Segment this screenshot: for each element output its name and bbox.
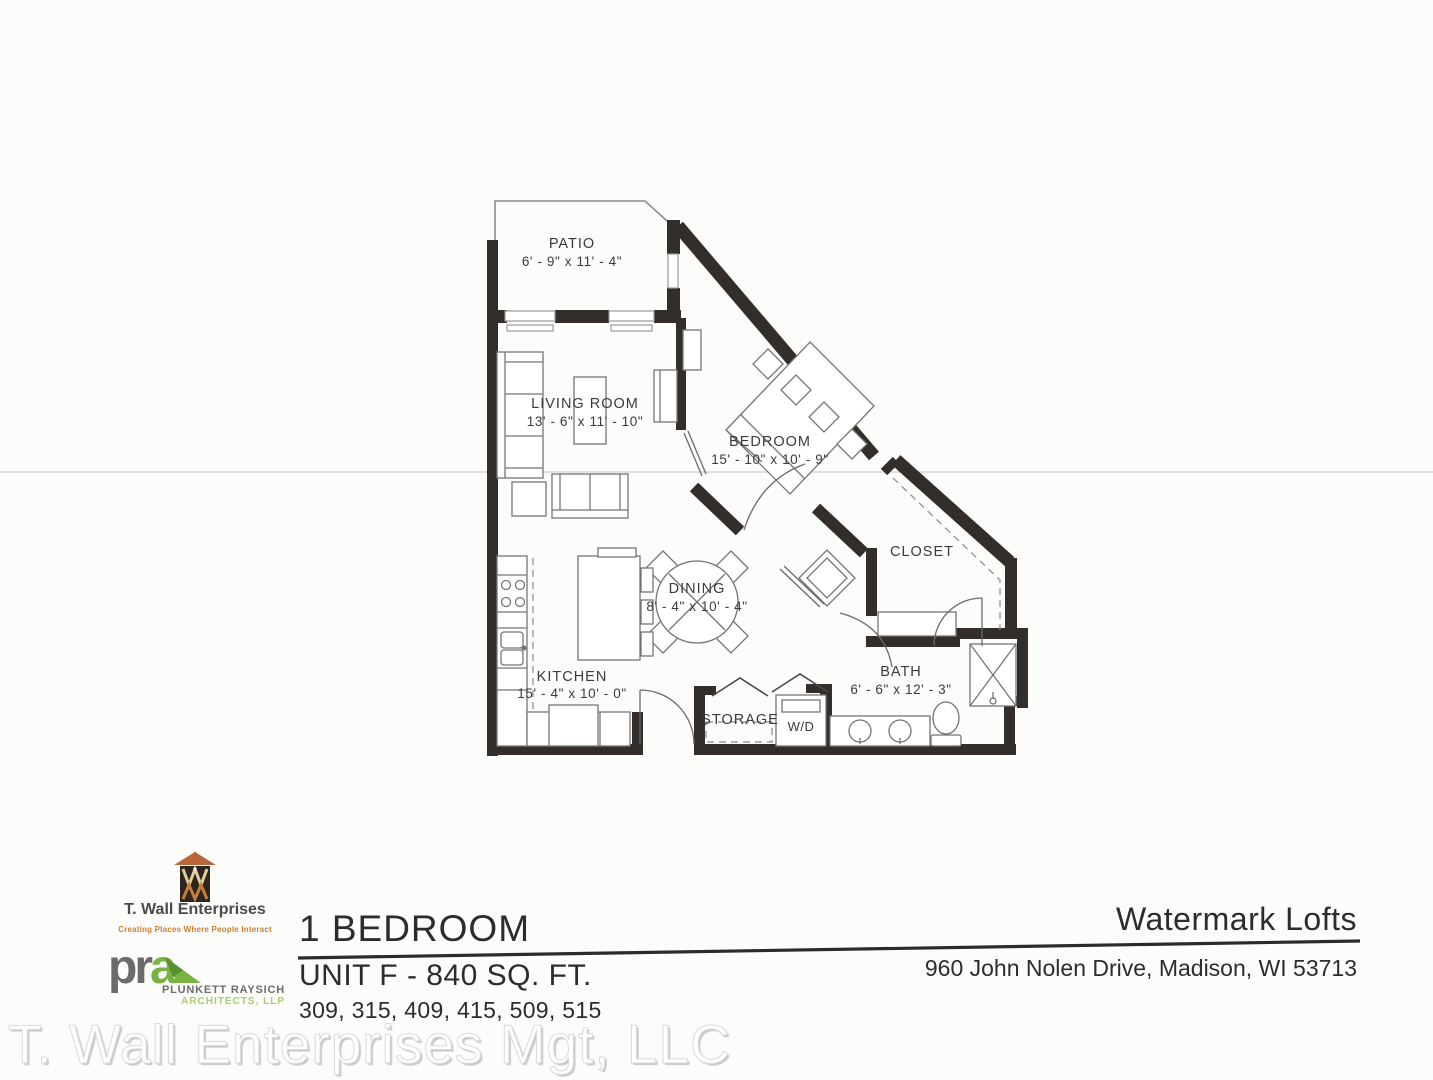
property-name: Watermark Lofts	[953, 901, 1357, 938]
tv-stand-icon	[654, 370, 677, 422]
room-label-kitchen: KITCHEN	[537, 669, 608, 685]
twall-logo-icon	[172, 852, 218, 904]
pra-firm-name: PLUNKETT RAYSICH	[130, 984, 285, 996]
property-address: 960 John Nolen Drive, Madison, WI 53713	[903, 955, 1357, 982]
room-dims-dining: 8' - 4" x 10' - 4"	[646, 599, 747, 614]
loveseat-icon	[552, 474, 628, 518]
room-dims-bath: 6' - 6" x 12' - 3"	[850, 682, 951, 697]
kitchen-island-icon	[578, 548, 653, 660]
unit-spec: UNIT F - 840 SQ. FT.	[299, 959, 592, 993]
room-dims-living: 13' - 6" x 11' - 10"	[527, 414, 644, 429]
floor-plan-page: PATIO 6' - 9" x 11' - 4" LIVING ROOM 13'…	[0, 0, 1433, 1080]
pra-firm-suffix: ARCHITECTS, LLP	[130, 996, 285, 1007]
room-label-bedroom: BEDROOM	[729, 434, 811, 450]
room-label-storage: STORAGE	[701, 712, 779, 728]
room-label-patio: PATIO	[549, 236, 595, 252]
pra-leaf-icon	[163, 955, 203, 985]
sink-icon	[501, 632, 526, 665]
vanity-icon	[830, 716, 930, 746]
unit-type-title: 1 BEDROOM	[299, 908, 530, 950]
twall-logo-name: T. Wall Enterprises	[100, 901, 290, 919]
room-label-bath: BATH	[880, 664, 922, 680]
room-dims-patio: 6' - 9" x 11' - 4"	[522, 254, 622, 269]
end-table-icon	[512, 482, 546, 516]
room-dims-kitchen: 15' - 4" x 10' - 0"	[517, 686, 626, 701]
room-label-wd: W/D	[788, 719, 815, 734]
room-label-dining: DINING	[669, 581, 726, 597]
entry-door-icon	[640, 690, 694, 744]
bedroom-furniture	[726, 342, 874, 606]
toilet-icon	[931, 702, 961, 746]
twall-logo-tagline: Creating Places Where People Interact	[92, 925, 298, 934]
corner-chair-icon	[799, 550, 855, 606]
bed-icon	[726, 342, 874, 494]
room-label-living: LIVING ROOM	[531, 396, 639, 412]
kitchen-fixtures	[497, 548, 653, 746]
dresser-icon	[683, 330, 701, 370]
room-label-closet: CLOSET	[890, 544, 954, 560]
room-dims-bedroom: 15' - 10" x 10' - 9"	[711, 452, 829, 467]
shower-icon	[970, 644, 1016, 706]
unit-numbers: 309, 315, 409, 415, 509, 515	[299, 997, 602, 1024]
